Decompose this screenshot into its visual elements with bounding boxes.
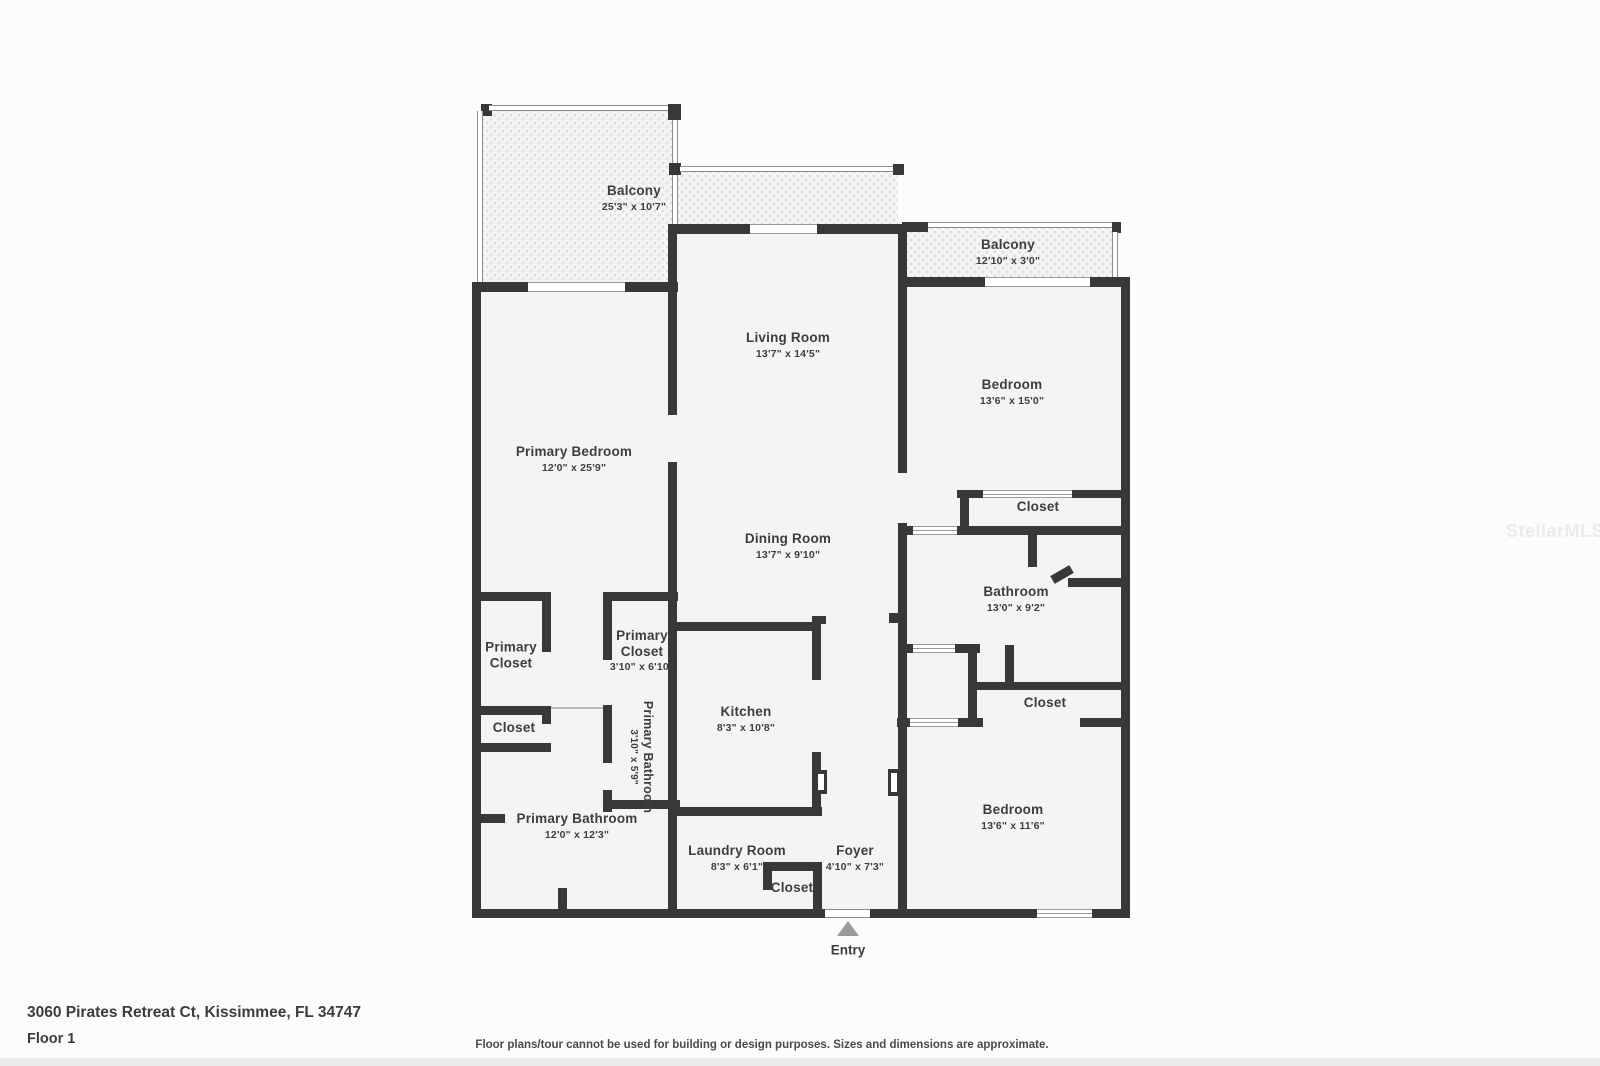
wall-segment (1080, 718, 1130, 727)
room-dims: 12'0" x 12'3" (517, 828, 638, 841)
room-label-foyer: Foyer 4'10" x 7'3" (826, 843, 884, 873)
wall-segment (958, 718, 983, 727)
room-label-bedroom-bottom: Bedroom 13'6" x 11'6" (981, 802, 1045, 832)
room-label-living-room: Living Room 13'7" x 14'5" (746, 330, 830, 360)
wall-segment (812, 616, 821, 680)
room-label-closet-bedroom-top: Closet (1017, 499, 1059, 515)
wall-segment (558, 888, 567, 909)
room-name: Kitchen (717, 704, 775, 720)
room-label-balcony-small: Balcony 12'10" x 3'0" (976, 237, 1040, 267)
room-name: Primary Bathroom (517, 811, 638, 827)
wall-segment (898, 234, 907, 473)
wall-segment (603, 705, 612, 763)
room-label-primary-closet-large: Primary Closet (471, 639, 551, 670)
balcony-railing (672, 175, 678, 224)
room-label-primary-closet-small: Primary Closet 3'10" x 6'10" (602, 628, 682, 674)
wall-segment (603, 592, 678, 601)
balcony-floor (678, 172, 898, 224)
door-jamb-opening (818, 774, 824, 790)
wall-segment (472, 743, 551, 752)
room-label-dining-room: Dining Room 13'7" x 9'10" (745, 531, 831, 561)
entry-threshold (825, 909, 870, 918)
wall-segment (472, 909, 825, 918)
wall-segment (1068, 578, 1122, 587)
room-dims: 3'10" x 6'10" (602, 661, 682, 674)
room-name: Primary Bedroom (516, 444, 632, 460)
room-name: Laundry Room (688, 843, 786, 859)
wall-segment (977, 682, 1130, 690)
room-name: Balcony (976, 237, 1040, 253)
room-name: Primary Closet (602, 628, 682, 659)
room-name: Bedroom (980, 377, 1044, 393)
room-dims: 4'10" x 7'3" (826, 860, 884, 873)
wall-segment (1005, 645, 1014, 683)
cased-opening (913, 644, 955, 653)
balcony-railing (1112, 232, 1118, 277)
threshold-line (551, 707, 603, 709)
wall-segment (957, 526, 1130, 535)
footer-bar (0, 1058, 1600, 1066)
room-name: Dining Room (745, 531, 831, 547)
wall-segment (677, 622, 813, 631)
room-dims: 12'10" x 3'0" (976, 254, 1040, 267)
room-name: Balcony (602, 183, 666, 199)
entry-arrow-icon (837, 921, 859, 936)
balcony-railing (477, 111, 483, 283)
wall-segment (898, 644, 913, 653)
door-jamb (889, 613, 900, 623)
room-label-primary-bedroom: Primary Bedroom 12'0" x 25'9" (516, 444, 632, 474)
room-name: Closet (771, 880, 813, 896)
room-name: Living Room (746, 330, 830, 346)
floorplan-canvas: Balcony 25'3" x 10'7" Balcony 12'10" x 3… (0, 0, 1600, 1066)
cased-opening (913, 526, 957, 535)
balcony-railing (680, 166, 894, 172)
window (1037, 909, 1092, 918)
address-text: 3060 Pirates Retreat Ct, Kissimmee, FL 3… (27, 1004, 361, 1022)
room-dims: 13'6" x 15'0" (980, 394, 1044, 407)
wall-segment (870, 909, 1037, 918)
wall-segment (1028, 535, 1037, 567)
room-dims: 13'7" x 9'10" (745, 548, 831, 561)
room-label-balcony-main: Balcony 25'3" x 10'7" (602, 183, 666, 213)
railing-post (668, 104, 681, 120)
room-label-kitchen: Kitchen 8'3" x 10'8" (717, 704, 775, 734)
railing-post (893, 164, 904, 175)
wall-segment (955, 644, 980, 653)
wall-segment (897, 718, 910, 727)
room-dims: 13'6" x 11'6" (981, 819, 1045, 832)
wall-segment (472, 706, 551, 715)
room-name: Bedroom (981, 802, 1045, 818)
room-label-primary-bathroom-small: Primary Bathroom 3'10" x 5'9" (627, 697, 655, 817)
room-dims: 8'3" x 10'8" (717, 721, 775, 734)
room-name: Closet (1017, 499, 1059, 515)
room-label-bathroom: Bathroom 13'0" x 9'2" (983, 584, 1048, 614)
wall-segment (817, 224, 907, 234)
wall-segment (668, 234, 677, 415)
cased-opening (910, 718, 958, 727)
balcony-railing (928, 222, 1113, 228)
room-label-primary-bathroom: Primary Bathroom 12'0" x 12'3" (517, 811, 638, 841)
window (750, 224, 817, 234)
room-name: Closet (493, 720, 535, 736)
room-dims: 8'3" x 6'1" (688, 860, 786, 873)
floor-label: Floor 1 (27, 1031, 75, 1047)
room-dims: 13'0" x 9'2" (983, 601, 1048, 614)
room-name: Primary Closet (471, 639, 551, 670)
watermark: StellarMLS (1506, 521, 1600, 542)
window (985, 277, 1090, 287)
balcony-railing (489, 105, 669, 111)
wall-segment (672, 807, 822, 816)
room-label-closet-laundry: Closet (771, 880, 813, 896)
room-dims: 12'0" x 25'9" (516, 461, 632, 474)
room-dims: 25'3" x 10'7" (602, 200, 666, 213)
room-dims: 3'10" x 5'9" (627, 697, 639, 817)
wall-segment (472, 814, 505, 823)
door-jamb-opening (891, 773, 897, 792)
room-name: Foyer (826, 843, 884, 859)
wall-segment (668, 224, 750, 234)
wall-segment (472, 592, 551, 601)
room-name: Primary Bathroom (641, 697, 655, 817)
cased-opening (983, 490, 1072, 498)
room-label-closet-hall: Closet (1024, 695, 1066, 711)
room-label-bedroom-top: Bedroom 13'6" x 15'0" (980, 377, 1044, 407)
room-name: Closet (1024, 695, 1066, 711)
room-label-closet-primary: Closet (493, 720, 535, 736)
window (528, 282, 625, 292)
wall-segment (542, 715, 551, 724)
wall-segment (472, 282, 528, 292)
entry-label: Entry (831, 943, 866, 958)
wall-segment (1121, 277, 1130, 918)
room-label-laundry-room: Laundry Room 8'3" x 6'1" (688, 843, 786, 873)
room-name: Bathroom (983, 584, 1048, 600)
wall-segment (813, 862, 822, 909)
wall-segment (898, 277, 985, 287)
wall-segment (668, 462, 677, 918)
disclaimer-text: Floor plans/tour cannot be used for buil… (475, 1039, 1048, 1051)
room-dims: 13'7" x 14'5" (746, 347, 830, 360)
wall-segment (1072, 490, 1130, 498)
wall-segment (968, 653, 977, 718)
balcony-railing (672, 120, 678, 164)
wall-segment (1090, 277, 1130, 287)
